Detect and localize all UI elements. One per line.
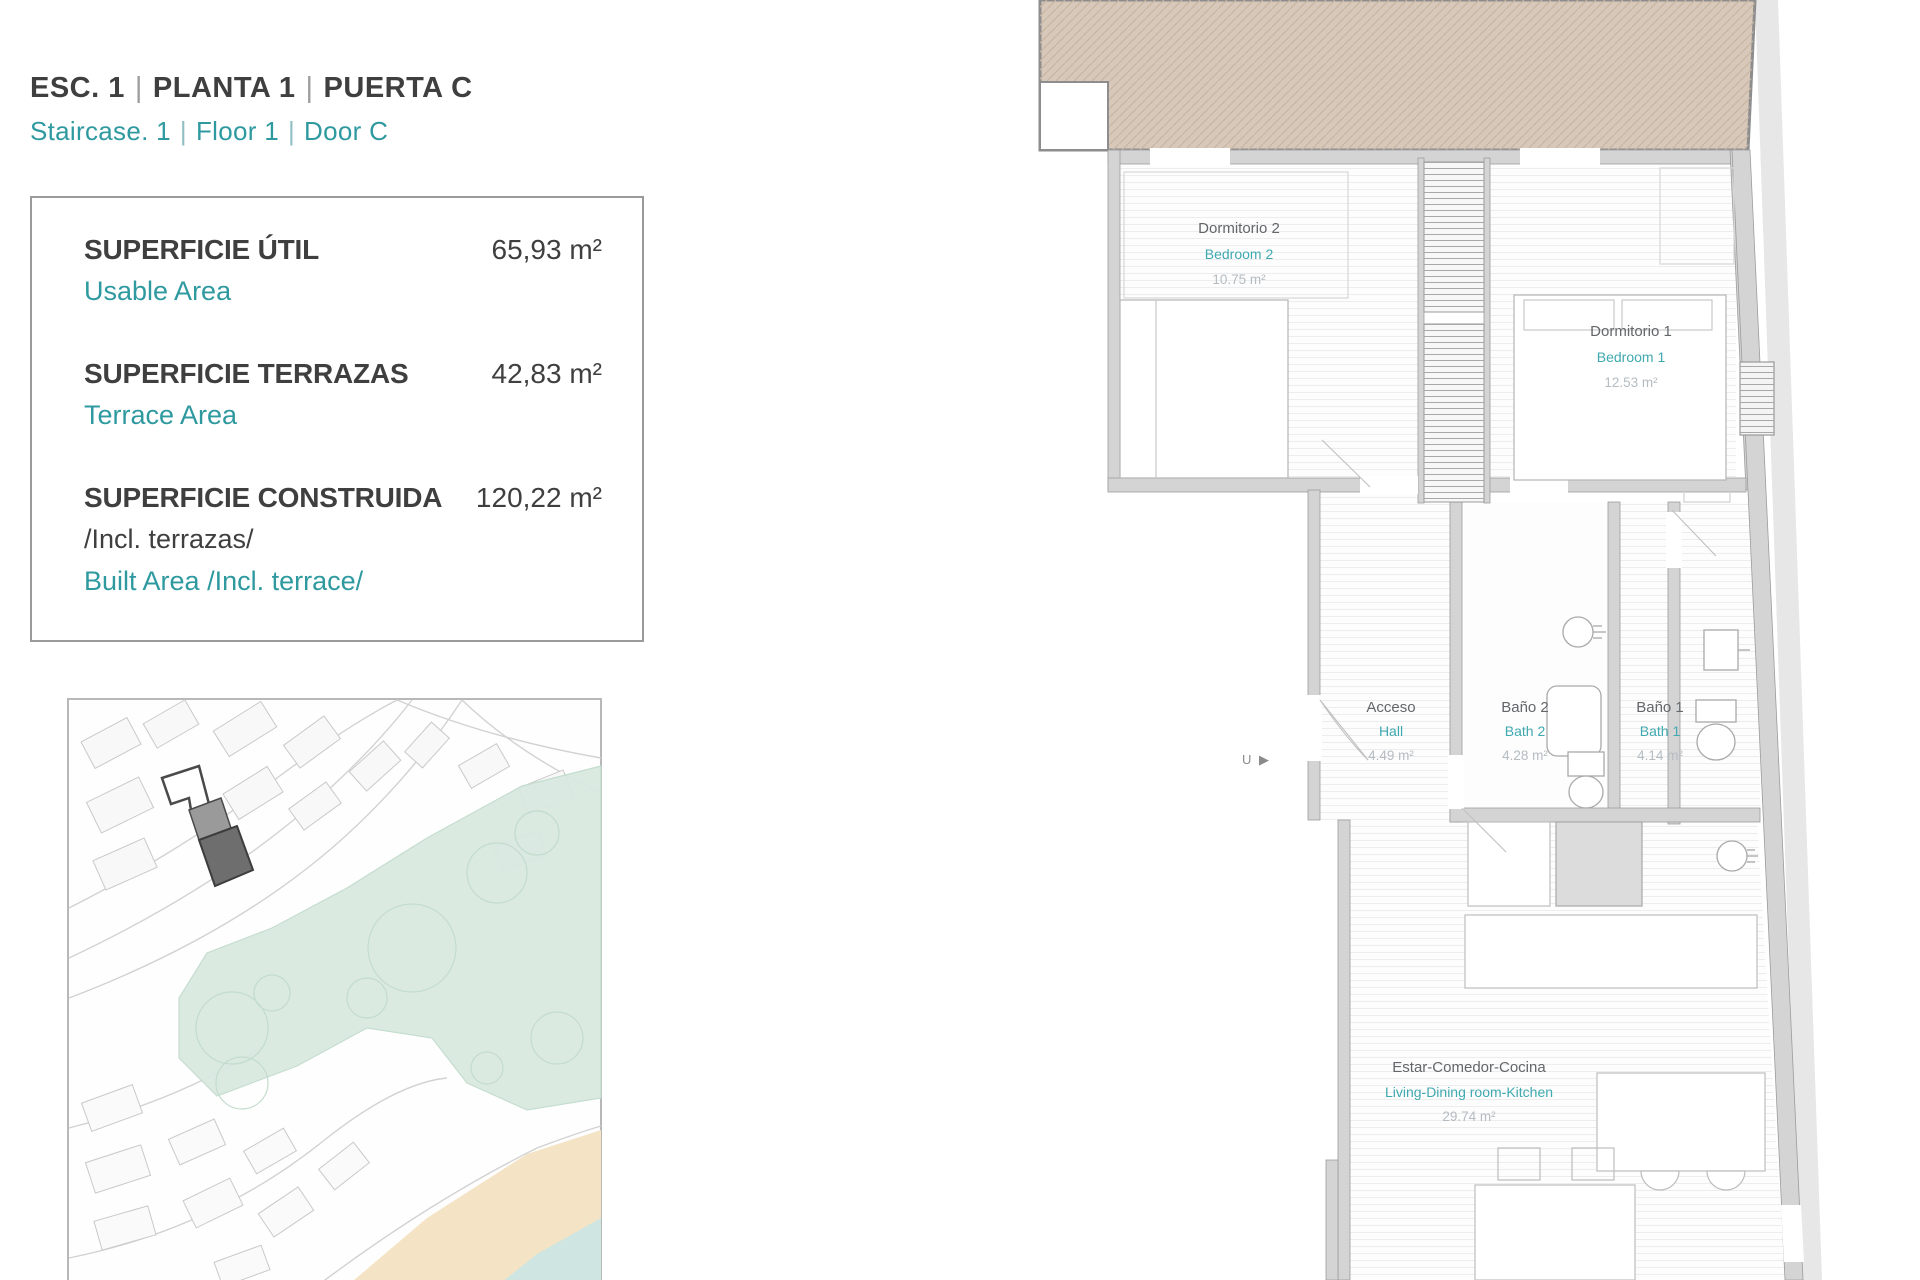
built-area-label-en: Built Area /Incl. terrace/ <box>84 566 363 597</box>
title-separator: | <box>125 72 153 104</box>
title-esc: ESC. 1 <box>30 72 125 104</box>
bedroom2-area: 10.75 m² <box>1212 272 1266 287</box>
subtitle-floor: Floor 1 <box>196 116 279 146</box>
terrace <box>1040 0 1755 150</box>
terrace-area-value: 42,83 m² <box>492 358 603 390</box>
living-label-en: Living-Dining room-Kitchen <box>1385 1084 1553 1100</box>
bedroom2-label-en: Bedroom 2 <box>1205 246 1274 262</box>
built-area-label-es: SUPERFICIE CONSTRUIDA <box>84 482 442 514</box>
plan-title-en: Staircase. 1|Floor 1|Door C <box>30 116 388 147</box>
title-puerta: PUERTA C <box>324 72 473 104</box>
bath1-area: 4.14 m² <box>1637 748 1683 763</box>
bedroom1-area: 12.53 m² <box>1604 375 1658 390</box>
brochure-page: ESC. 1|PLANTA 1|PUERTA C Staircase. 1|Fl… <box>0 0 1920 1280</box>
hall-label-es: Acceso <box>1366 699 1415 716</box>
subtitle-separator: | <box>279 116 304 146</box>
bedroom2-label-es: Dormitorio 2 <box>1198 220 1280 237</box>
bath2-area: 4.28 m² <box>1502 748 1548 763</box>
entry-symbol: U ▶ <box>1242 752 1271 767</box>
surface-areas-box: SUPERFICIE ÚTIL 65,93 m² Usable Area SUP… <box>30 196 644 642</box>
hall-area: 4.49 m² <box>1368 748 1414 763</box>
terrace-area-label-es: SUPERFICIE TERRAZAS <box>84 358 408 390</box>
bath1-label-en: Bath 1 <box>1640 723 1681 739</box>
floor-plan: U ▶ Dormitorio 2 Bedroom 2 10.75 m² Dorm… <box>1020 0 1920 1280</box>
hall-label-en: Hall <box>1379 723 1403 739</box>
terrace-area-label-en: Terrace Area <box>84 400 237 431</box>
title-separator: | <box>295 72 323 104</box>
living-label-es: Estar-Comedor-Cocina <box>1392 1059 1546 1076</box>
location-map-svg <box>67 698 602 1280</box>
staircase <box>1424 162 1484 502</box>
living-area: 29.74 m² <box>1442 1109 1496 1124</box>
location-map <box>67 698 602 1280</box>
title-planta: PLANTA 1 <box>153 72 296 104</box>
subtitle-door: Door C <box>304 116 388 146</box>
floor-plan-svg: U ▶ Dormitorio 2 Bedroom 2 10.75 m² Dorm… <box>1020 0 1920 1280</box>
bedroom1-label-es: Dormitorio 1 <box>1590 323 1672 340</box>
plan-title-es: ESC. 1|PLANTA 1|PUERTA C <box>30 72 473 105</box>
usable-area-value: 65,93 m² <box>492 234 603 266</box>
terrace-notch <box>1040 82 1108 150</box>
bath1-label-es: Baño 1 <box>1636 699 1684 716</box>
bath2-label-es: Baño 2 <box>1501 699 1549 716</box>
subtitle-separator: | <box>171 116 196 146</box>
bedroom1-label-en: Bedroom 1 <box>1597 349 1666 365</box>
usable-area-label-en: Usable Area <box>84 276 231 307</box>
built-area-value: 120,22 m² <box>476 482 602 514</box>
bath2-label-en: Bath 2 <box>1505 723 1546 739</box>
subtitle-staircase: Staircase. 1 <box>30 116 171 146</box>
usable-area-label-es: SUPERFICIE ÚTIL <box>84 234 319 266</box>
exterior-stair-unit <box>1740 362 1774 435</box>
built-area-label-es2: /Incl. terrazas/ <box>84 524 254 555</box>
